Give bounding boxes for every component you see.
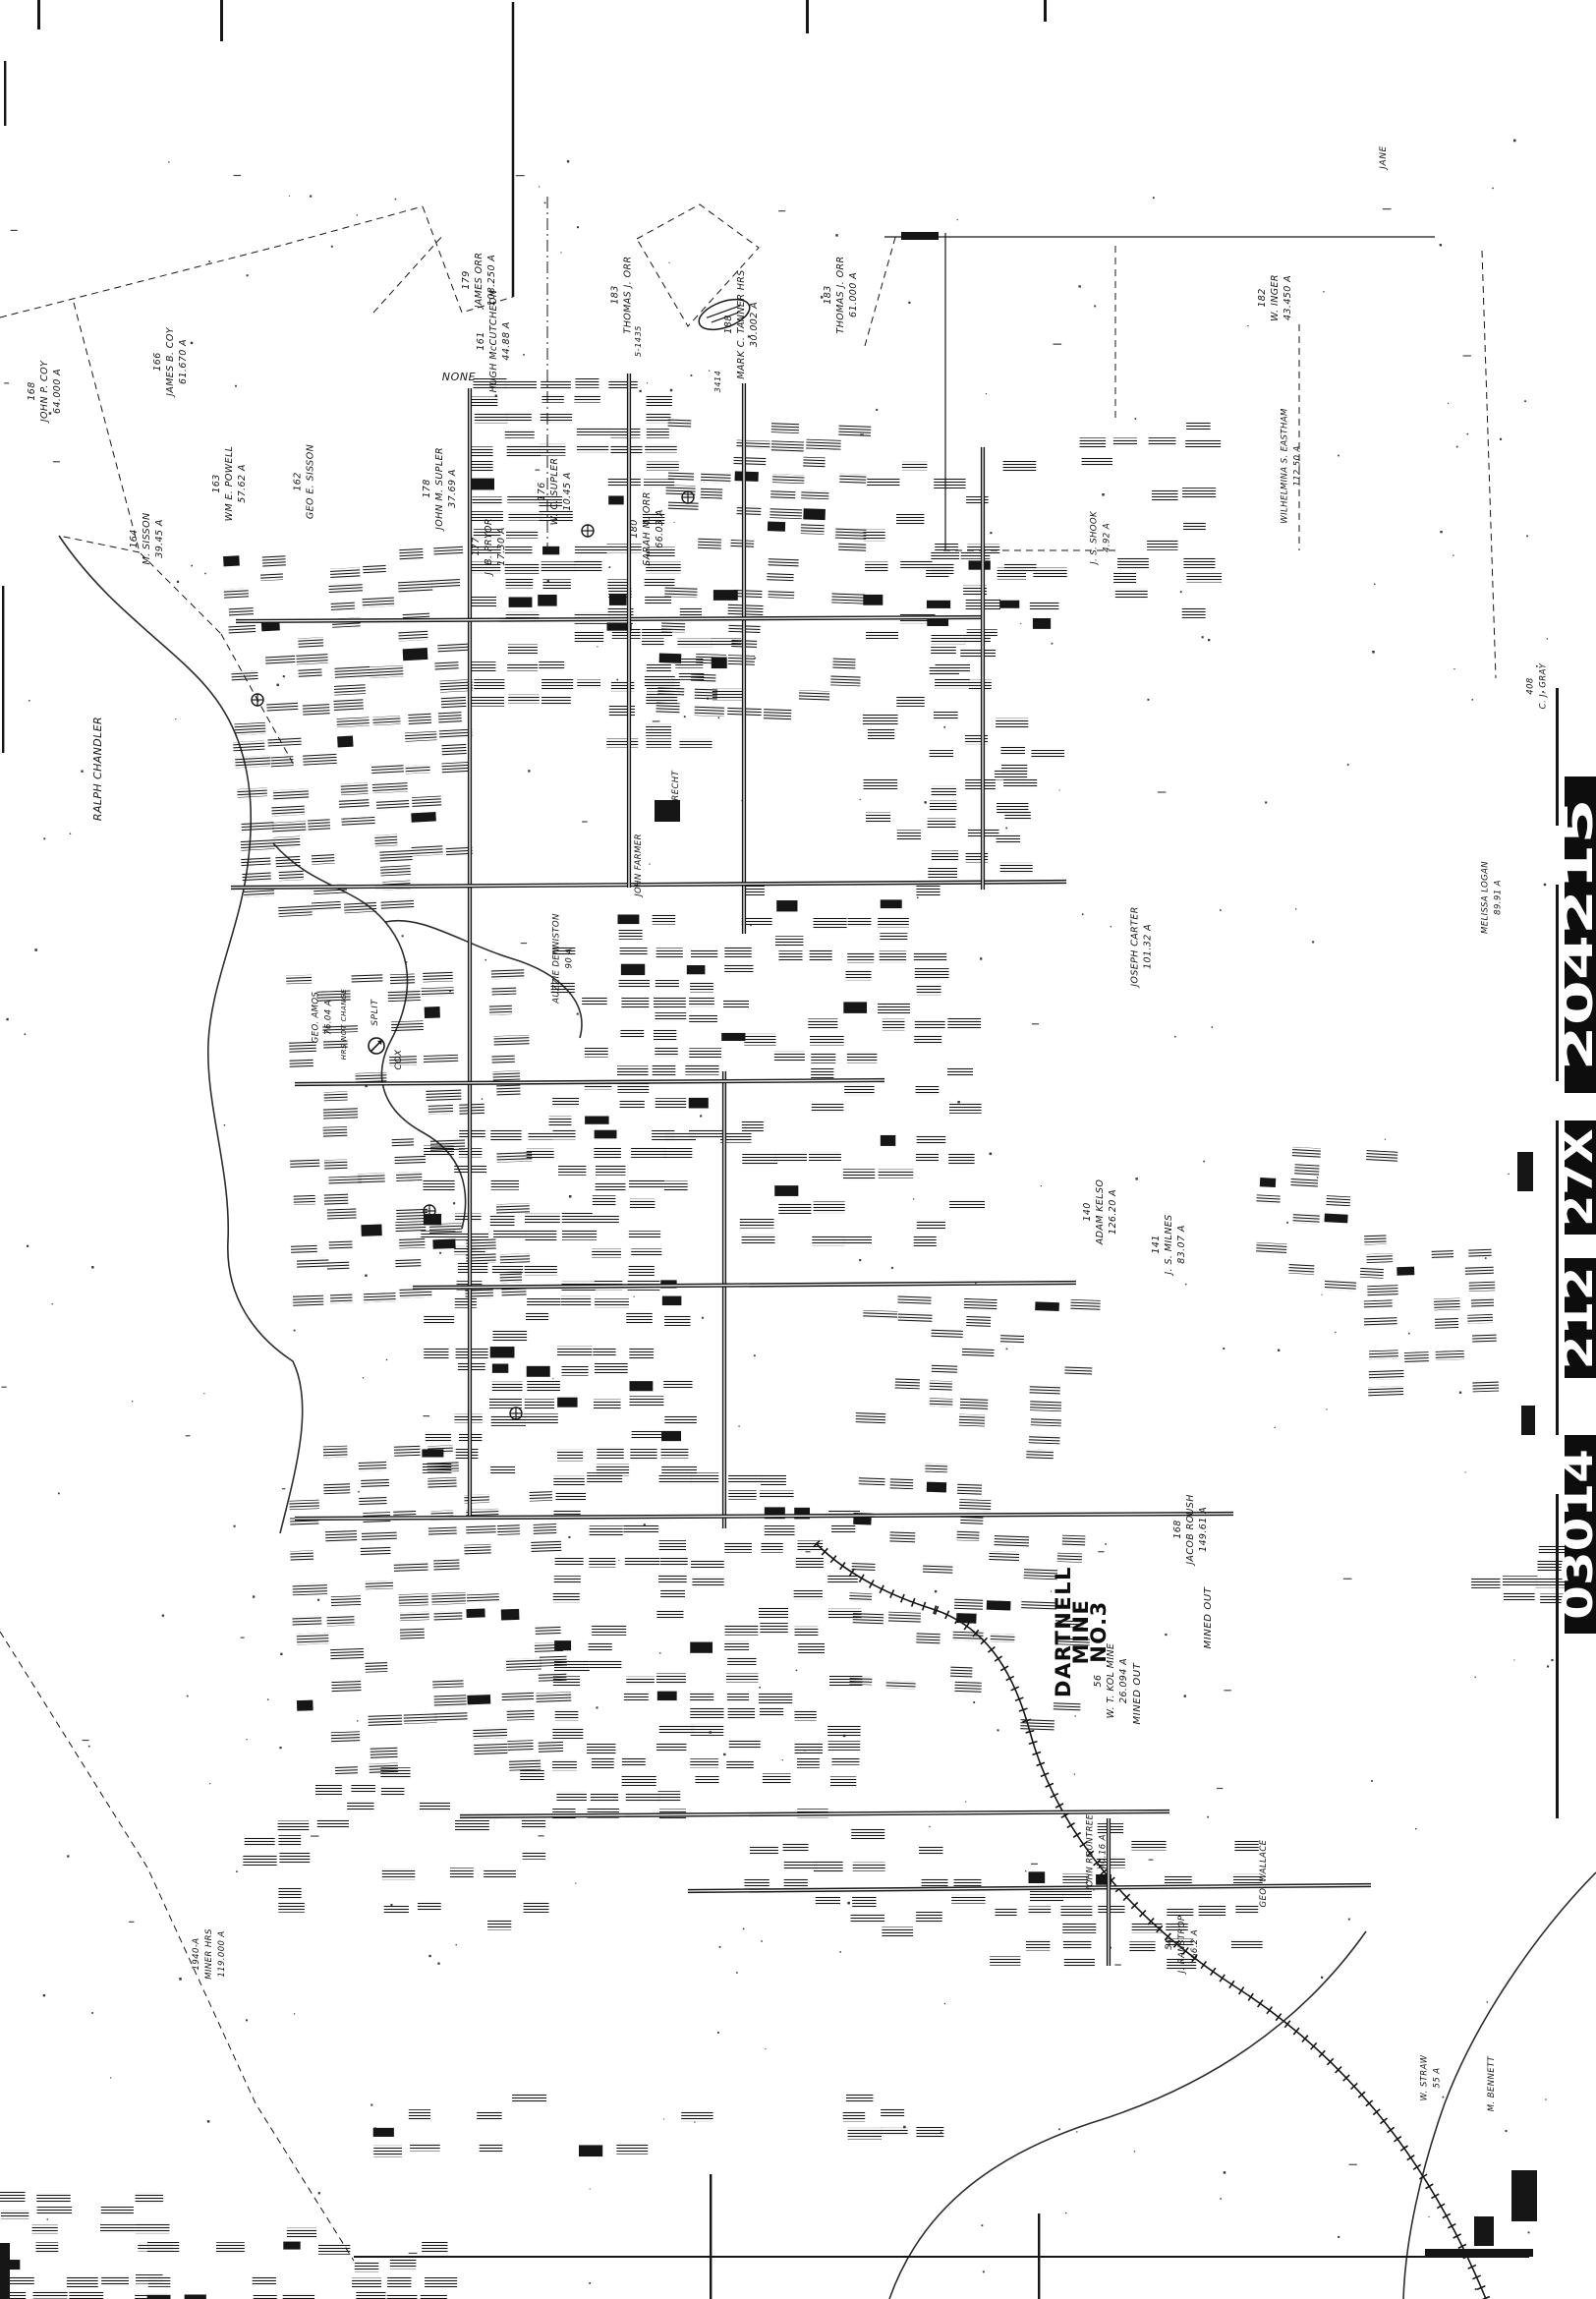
scan-speck (1459, 1392, 1461, 1394)
scan-speck (1114, 1964, 1120, 1965)
scan-speck (1098, 1551, 1104, 1552)
scan-speck (1076, 2131, 1077, 2132)
scan-speck (1463, 355, 1471, 356)
scan-speck (1025, 1870, 1026, 1871)
scan-speck (1453, 668, 1454, 669)
scan-speck (27, 1245, 28, 1247)
scan-speck (917, 896, 919, 898)
scan-speck (973, 1701, 975, 1703)
scan-speck (81, 771, 83, 773)
scan-speck (449, 990, 451, 992)
scan-speck (924, 801, 926, 803)
scan-speck (406, 961, 408, 963)
scan-speck (241, 1637, 245, 1638)
scan-speck (1220, 909, 1222, 911)
shaft-symbol (252, 694, 263, 706)
mine-workings-hatch (0, 2190, 173, 2299)
scan-speck (567, 160, 569, 162)
parcel-label: J. S. SHOOK4.92 A (1090, 510, 1112, 566)
scan-speck (957, 219, 958, 220)
scan-speck (575, 1883, 576, 1884)
scan-speck (1207, 1816, 1209, 1818)
scan-speck (741, 800, 742, 801)
scan-speck (1020, 623, 1021, 624)
registration-tick (710, 2174, 712, 2299)
scan-artifact (901, 232, 939, 240)
scan-speck (616, 679, 618, 681)
scan-speck (1105, 1543, 1107, 1545)
scan-speck (539, 1835, 544, 1836)
scan-speck (490, 291, 492, 293)
scan-speck (1335, 1332, 1336, 1333)
scan-speck (428, 1955, 430, 1957)
scan-speck (208, 260, 210, 262)
scan-speck (859, 1259, 861, 1261)
scan-artifact (1517, 1152, 1533, 1191)
scan-speck (409, 2253, 418, 2254)
scan-speck (523, 354, 525, 356)
scan-speck (765, 2048, 766, 2049)
mine-map-canvas: 168JOHN P. COY64.000 A166JAMES B. COY61.… (0, 0, 1596, 2299)
map-annotation: COX (394, 1049, 404, 1069)
scan-speck (191, 565, 193, 567)
scan-speck (1456, 446, 1458, 448)
scan-speck (318, 2192, 320, 2194)
scan-speck (943, 726, 945, 728)
scan-speck (187, 1696, 189, 1697)
scan-speck (983, 2270, 985, 2272)
scan-speck (253, 1595, 255, 1597)
scan-speck (796, 1670, 797, 1671)
parcel-label: 162GEO E. SISSON (293, 444, 316, 519)
scan-speck (609, 566, 611, 568)
scan-speck (1135, 418, 1137, 420)
scan-speck (28, 700, 29, 701)
scan-speck (568, 1536, 570, 1538)
scan-speck (280, 1653, 282, 1655)
scan-speck (913, 1198, 914, 1199)
scan-speck (1158, 791, 1166, 792)
scan-speck (694, 2122, 695, 2123)
scan-speck (1443, 2097, 1445, 2098)
scan-speck (908, 302, 910, 304)
parcel-label: 183THOMAS J. ORR (610, 257, 634, 334)
scan-speck (1529, 2187, 1530, 2188)
scan-speck (283, 675, 285, 677)
scan-artifact (1474, 2216, 1494, 2246)
scan-speck (750, 925, 752, 927)
shaft-symbol (582, 525, 594, 537)
shaft-symbol (682, 491, 694, 503)
scan-speck (204, 573, 205, 574)
scan-speck (1074, 1773, 1075, 1774)
scan-speck (997, 1729, 999, 1731)
parcel-label: GEO. WALLACE (1259, 1839, 1269, 1907)
scanned-mine-map-document: 168JOHN P. COY64.000 A166JAMES B. COY61.… (0, 0, 1596, 2299)
id-block-number: 204215 (1554, 799, 1596, 1071)
scan-speck (1295, 908, 1296, 909)
scan-speck (1110, 1947, 1111, 1949)
parcel-label: 164M. SISSON39.45 A (129, 513, 165, 565)
mine-workings-hatch (243, 1767, 548, 1929)
map-annotation: NONE (442, 371, 476, 383)
scan-speck (1536, 665, 1538, 667)
scan-speck (234, 175, 242, 176)
scan-speck (839, 1951, 841, 1953)
scan-speck (1058, 2128, 1060, 2130)
scan-speck (132, 1401, 133, 1402)
scan-speck (582, 821, 588, 822)
scan-speck (944, 2003, 945, 2004)
scan-speck (58, 1493, 60, 1495)
parcel-label: M. BENNETT (1487, 2055, 1497, 2111)
scan-speck (282, 1488, 285, 1489)
mine-workings-hatch (222, 544, 484, 919)
scan-speck (1528, 2231, 1530, 2233)
scan-speck (453, 1202, 455, 1204)
scan-speck (357, 1720, 358, 1721)
scan-speck (129, 1922, 134, 1923)
scan-speck (91, 1266, 93, 1268)
scan-speck (70, 833, 71, 834)
scan-speck (289, 196, 290, 197)
scan-speck (723, 1753, 725, 1755)
scan-speck (1429, 2216, 1430, 2217)
scan-speck (1005, 828, 1007, 830)
scan-speck (1041, 1185, 1042, 1186)
scan-speck (1185, 1284, 1186, 1285)
scan-speck (1135, 1178, 1137, 1179)
registration-tick (1044, 0, 1047, 22)
scan-speck (311, 1835, 318, 1836)
scan-speck (748, 335, 750, 337)
scan-speck (191, 342, 193, 344)
scan-speck (754, 658, 756, 660)
scan-speck (386, 1359, 387, 1360)
scan-speck (1053, 344, 1061, 345)
scan-speck (544, 202, 546, 204)
map-annotation: 3414 (713, 371, 722, 393)
scan-speck (990, 1153, 993, 1156)
scan-speck (1547, 638, 1548, 639)
scan-speck (235, 385, 237, 387)
scan-speck (590, 2189, 591, 2190)
scan-speck (168, 161, 169, 162)
scan-speck (1321, 1977, 1323, 1979)
scan-speck (940, 2132, 941, 2133)
scan-speck (1526, 535, 1528, 537)
parcel-label: 183THOMAS J. ORR61.000 A (823, 257, 859, 334)
parcel-label: 182W. INGER43.450 A (1257, 274, 1293, 321)
scan-speck (1485, 1257, 1487, 1259)
scan-speck (1349, 2164, 1357, 2165)
scan-speck (1079, 285, 1081, 287)
scan-speck (1059, 789, 1060, 790)
scan-artifact (655, 800, 680, 822)
scan-speck (1278, 1350, 1280, 1351)
scan-speck (25, 1033, 27, 1035)
mine-workings-hatch (744, 1828, 985, 1937)
map-annotation: JANE (1379, 145, 1389, 171)
scan-speck (1153, 197, 1155, 199)
scan-speck (957, 1101, 959, 1103)
scan-speck (1051, 1590, 1052, 1591)
railroad-ties (936, 1610, 1486, 2299)
scan-speck (1286, 1222, 1288, 1224)
parcel-label: MELISSA LOGAN89.91 A (1481, 861, 1504, 934)
boundary-line (0, 1632, 354, 2261)
scan-speck (370, 2104, 372, 2106)
registration-tick (4, 61, 6, 126)
scan-speck (1075, 1715, 1076, 1716)
scan-speck (374, 2127, 376, 2129)
scan-speck (276, 684, 278, 686)
scan-speck (588, 1121, 590, 1122)
boundary-line (74, 303, 221, 634)
scan-speck (860, 433, 864, 434)
scan-speck (49, 412, 51, 414)
scan-speck (717, 2032, 719, 2034)
scan-speck (1524, 400, 1526, 402)
scan-speck (317, 1599, 319, 1601)
scan-speck (209, 1783, 210, 1784)
scan-speck (1220, 2198, 1222, 2200)
mine-workings-hatch (1252, 1144, 1397, 1293)
scan-speck (835, 234, 837, 236)
parcel-label: 168JACOB ROUSH149.61 A (1172, 1494, 1209, 1567)
scan-speck (1475, 1677, 1476, 1678)
scan-speck (495, 394, 497, 396)
scan-speck (647, 382, 648, 383)
parcel-label: JOSEPH CARTER101.32 A (1130, 906, 1154, 989)
map-annotation: HRS NOT CHANGE (340, 989, 348, 1060)
scan-speck (1317, 1177, 1318, 1178)
scan-speck (552, 1378, 553, 1379)
scan-speck (4, 382, 9, 383)
scan-speck (1415, 1828, 1416, 1829)
registration-tick (806, 0, 809, 33)
scan-speck (11, 230, 18, 231)
scan-speck (1385, 1139, 1386, 1140)
scan-speck (884, 1006, 885, 1007)
scan-speck (390, 1904, 392, 1906)
scan-speck (1265, 801, 1267, 803)
parcel-label: 168JOHN P. COY64.000 A (27, 360, 63, 424)
shaft-symbol (424, 1205, 435, 1217)
scan-speck (1374, 584, 1375, 585)
scan-speck (1371, 1780, 1373, 1782)
scan-speck (1326, 1408, 1327, 1409)
scan-speck (986, 393, 987, 394)
scan-speck (110, 2077, 111, 2078)
map-annotation: 5-1435 (634, 325, 643, 357)
scan-speck (43, 837, 45, 839)
scan-speck (1147, 699, 1149, 701)
scan-speck (331, 246, 333, 248)
scan-speck (6, 1018, 8, 1020)
scan-speck (719, 1946, 721, 1948)
scan-speck (365, 1275, 367, 1277)
scan-speck (982, 2224, 984, 2226)
scan-speck (1453, 554, 1453, 555)
scan-speck (700, 1115, 702, 1117)
scan-speck (439, 1252, 441, 1254)
scan-speck (821, 296, 823, 298)
scan-speck (1224, 1690, 1230, 1691)
mine-workings-hatch (1080, 422, 1223, 618)
parcel-label: 408C. J. GRAY (1526, 662, 1549, 709)
scan-speck (1312, 941, 1314, 943)
scan-speck (179, 1978, 182, 1981)
scan-speck (246, 2019, 248, 2021)
scan-speck (663, 2118, 664, 2119)
scan-speck (357, 214, 358, 215)
scan-speck (965, 1801, 966, 1802)
scan-speck (1, 1387, 6, 1388)
scan-speck (516, 175, 525, 176)
scan-speck (224, 1124, 225, 1125)
scan-speck (860, 799, 861, 800)
scan-speck (236, 1870, 238, 1872)
parcel-label: 178JOHN M. SUPLER37.69 A (422, 447, 458, 532)
scan-speck (1006, 1349, 1008, 1351)
scan-speck (804, 1750, 805, 1751)
scan-speck (649, 864, 650, 865)
scan-speck (778, 210, 785, 211)
scan-speck (1487, 2001, 1488, 2002)
scan-speck (975, 1283, 976, 1284)
registration-tick (37, 0, 40, 29)
scan-artifact (0, 2243, 10, 2299)
scan-speck (639, 390, 641, 392)
mine-workings-hatch (552, 1472, 862, 1819)
scan-speck (1212, 1026, 1214, 1028)
scan-speck (207, 2120, 209, 2122)
scan-speck (1174, 1036, 1176, 1038)
scan-speck (1513, 140, 1516, 143)
mine-workings-hatch (843, 2094, 944, 2140)
scan-speck (1372, 651, 1375, 654)
boundary-line (1482, 251, 1496, 678)
scan-speck (395, 199, 397, 201)
scan-speck (1551, 1659, 1553, 1661)
scan-speck (1544, 884, 1546, 886)
scan-speck (1323, 291, 1324, 292)
boundary-line (373, 234, 444, 313)
parcel-label: JOHN FARMER (634, 833, 644, 898)
scan-speck (52, 1303, 53, 1304)
scan-speck (1547, 1665, 1549, 1667)
mine-workings-hatch (740, 884, 985, 1246)
stream-line (59, 536, 303, 1533)
scan-speck (1467, 433, 1469, 435)
scan-artifact (1521, 1406, 1535, 1435)
scan-speck (569, 1195, 572, 1198)
split-arrow-marker (369, 1038, 384, 1054)
mine-workings-hatch (1361, 1231, 1499, 1397)
scan-speck (1347, 764, 1349, 766)
scan-speck (1338, 2236, 1339, 2238)
scan-speck (267, 1698, 268, 1699)
scan-speck (1275, 1427, 1276, 1428)
id-block-number: 03014 (1554, 1449, 1596, 1620)
scan-speck (782, 1759, 783, 1760)
scan-speck (1383, 208, 1392, 209)
scan-speck (402, 935, 404, 937)
scan-speck (1472, 699, 1474, 701)
scan-speck (547, 580, 549, 582)
scan-speck (1102, 493, 1105, 496)
scan-speck (1500, 438, 1502, 440)
scan-speck (990, 532, 992, 534)
scan-speck (1408, 1333, 1410, 1335)
scan-speck (1111, 926, 1111, 927)
map-annotation: SPLIT (370, 998, 380, 1025)
parcel-label: W. STRAW55 A (1420, 2054, 1443, 2100)
scan-speck (653, 720, 660, 721)
scan-speck (935, 1590, 937, 1592)
scan-speck (1052, 643, 1054, 645)
scan-speck (710, 1731, 712, 1733)
scan-speck (175, 718, 176, 719)
scan-speck (437, 1962, 439, 1964)
boundary-line (0, 206, 423, 317)
scan-speck (743, 1928, 745, 1930)
scan-speck (246, 1739, 247, 1740)
scan-speck (279, 1747, 281, 1749)
scan-speck (1208, 639, 1210, 641)
map-annotation: MINED OUT (1132, 1662, 1143, 1724)
scan-speck (1505, 2130, 1507, 2132)
registration-tick (2, 586, 4, 753)
scan-speck (423, 1415, 429, 1416)
scan-speck (1545, 2098, 1546, 2099)
scan-speck (310, 196, 312, 198)
id-block-number: 212 (1554, 1267, 1596, 1370)
scan-speck (670, 389, 672, 391)
scan-speck (669, 262, 670, 263)
scan-speck (247, 274, 249, 276)
scan-speck (53, 461, 60, 462)
scan-speck (1031, 1864, 1038, 1865)
scan-speck (535, 469, 540, 470)
scan-speck (684, 716, 686, 718)
scan-speck (1065, 2213, 1066, 2213)
scan-speck (539, 186, 540, 187)
parcel-label: 163WM E. POWELL57.62 A (211, 446, 248, 522)
scan-speck (482, 1098, 483, 1099)
parcel-label: 166JAMES B. COY61.670 A (152, 326, 189, 398)
scan-speck (1247, 325, 1248, 326)
scan-speck (627, 973, 629, 975)
scan-speck (1184, 1695, 1186, 1696)
scan-speck (718, 717, 720, 718)
scan-speck (47, 2218, 48, 2219)
boundary-line (423, 206, 513, 313)
scan-speck (294, 1330, 296, 1332)
scan-speck (1149, 1860, 1154, 1861)
scan-speck (709, 371, 710, 372)
scan-speck (597, 646, 598, 647)
parcel-label: 1940-AMINER HRS119.000 A (192, 1928, 227, 1980)
scan-speck (1492, 188, 1493, 189)
scan-speck (358, 1491, 360, 1493)
scan-speck (1403, 2147, 1407, 2148)
scan-speck (589, 2282, 591, 2284)
scan-speck (485, 959, 486, 960)
scan-speck (847, 1902, 850, 1905)
scan-speck (83, 1740, 89, 1741)
